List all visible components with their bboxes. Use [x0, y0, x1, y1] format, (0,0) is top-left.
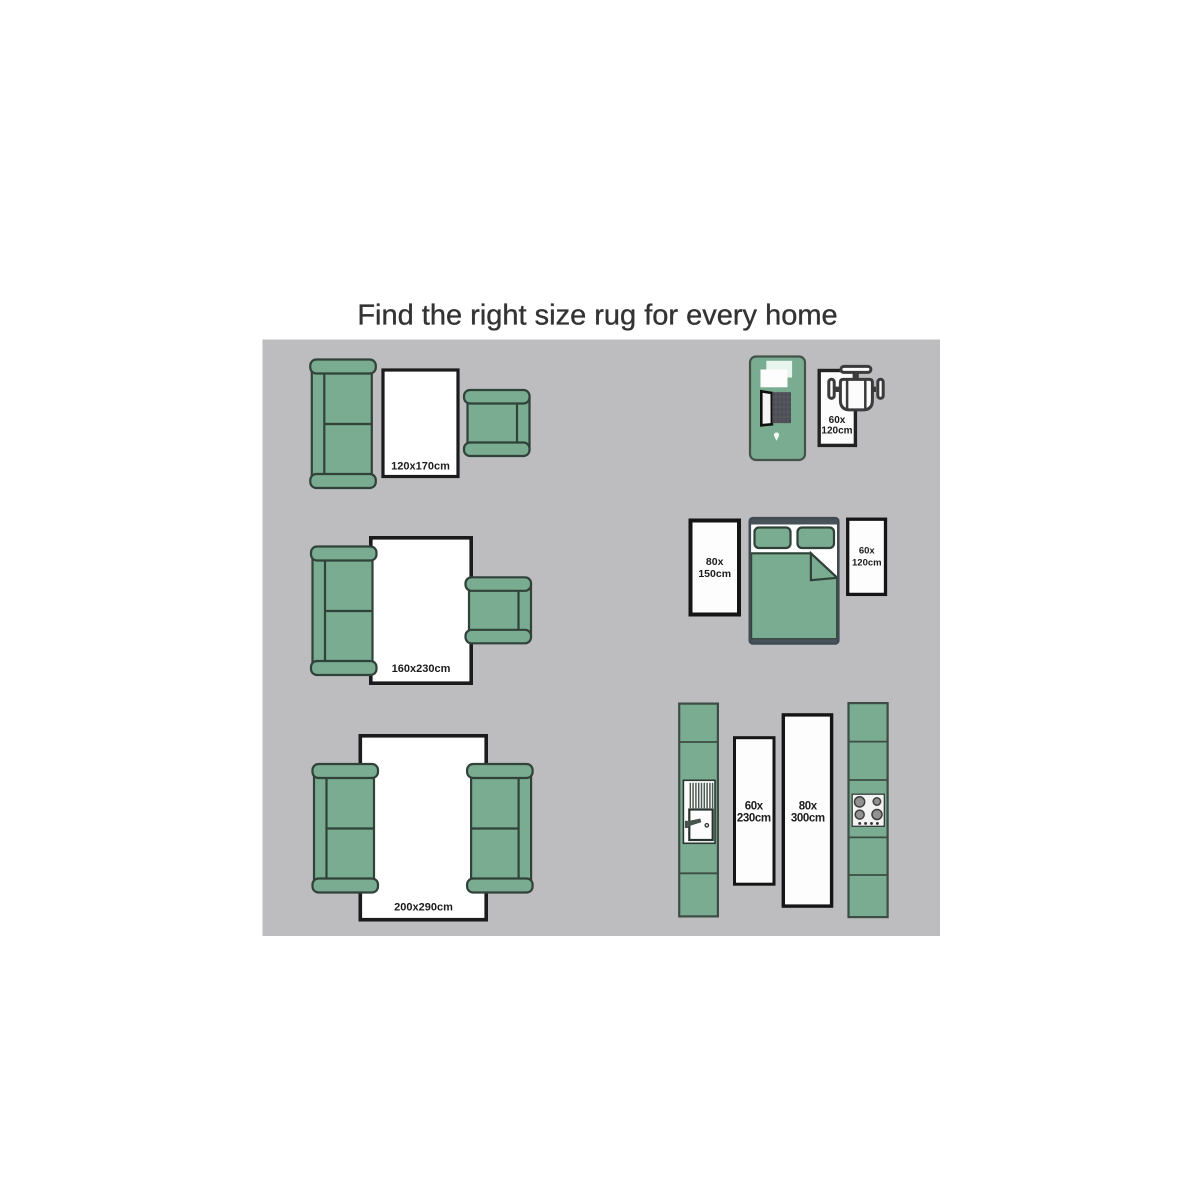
svg-text:60x: 60x — [745, 801, 764, 813]
svg-text:60x: 60x — [859, 546, 876, 557]
svg-text:300cm: 300cm — [791, 812, 825, 824]
svg-text:230cm: 230cm — [737, 812, 771, 824]
svg-text:60x: 60x — [829, 415, 846, 426]
svg-text:160x230cm: 160x230cm — [392, 663, 451, 675]
svg-text:80x: 80x — [706, 556, 724, 568]
svg-text:Find the right size rug for ev: Find the right size rug for every home — [357, 300, 837, 332]
svg-text:120cm: 120cm — [852, 557, 882, 568]
svg-text:200x290cm: 200x290cm — [394, 901, 453, 913]
svg-text:120x170cm: 120x170cm — [391, 461, 450, 473]
svg-text:150cm: 150cm — [698, 568, 731, 580]
svg-text:120cm: 120cm — [821, 426, 852, 437]
svg-text:80x: 80x — [799, 801, 818, 813]
